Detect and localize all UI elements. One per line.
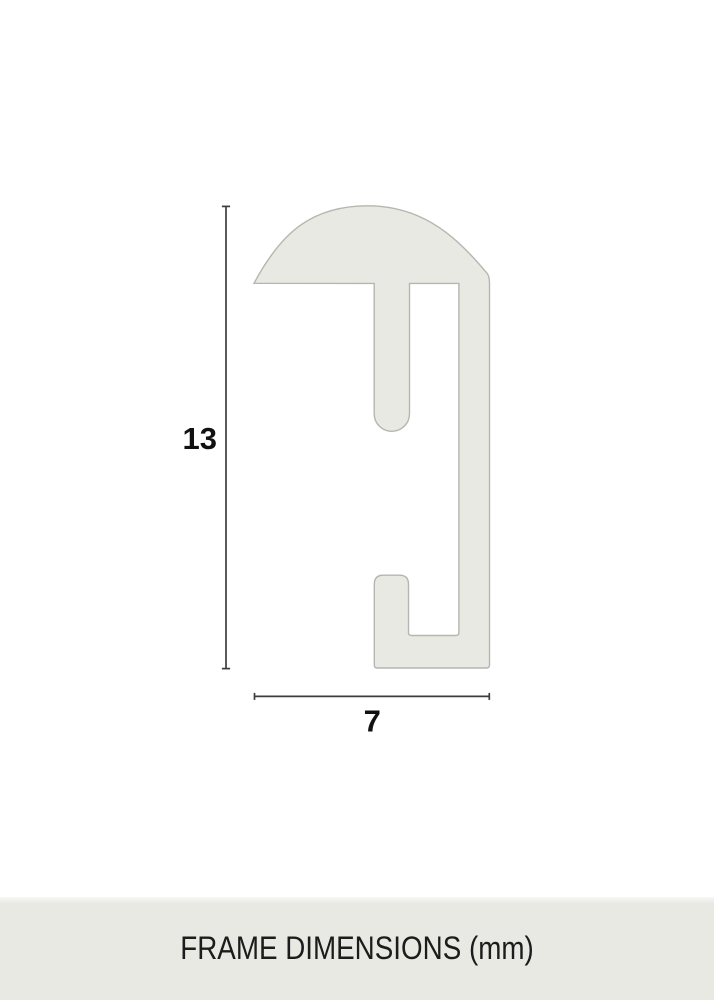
svg-text:7: 7 bbox=[364, 703, 381, 738]
svg-text:13: 13 bbox=[183, 421, 217, 456]
